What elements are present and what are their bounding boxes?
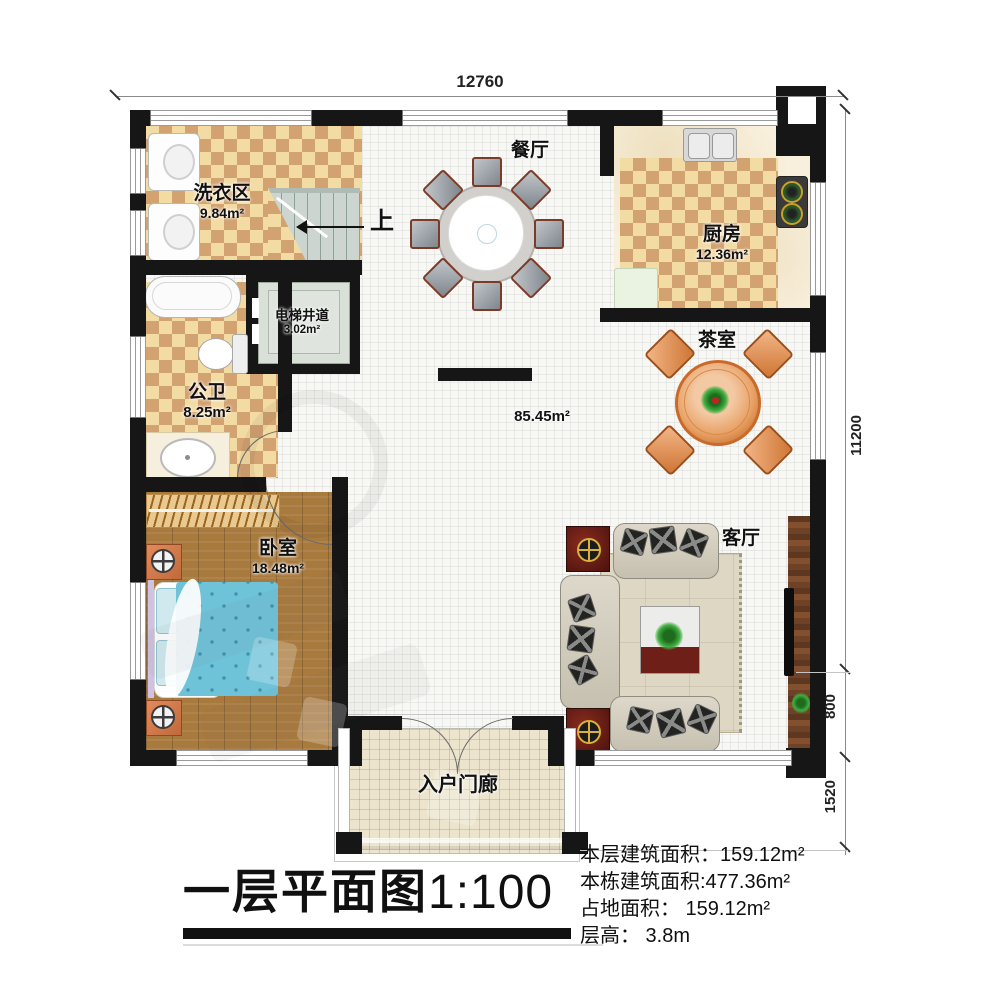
- exterior-wall-top: [566, 110, 662, 126]
- porch-side-wall: [564, 728, 576, 836]
- watermark: [246, 636, 298, 688]
- room-name: 卧室: [252, 538, 304, 560]
- room-label-tea-room: 茶室: [698, 330, 736, 352]
- toilet-tank: [232, 334, 248, 374]
- sink-basin: [688, 133, 710, 159]
- chimney-flue: [788, 96, 816, 124]
- wall: [438, 368, 532, 381]
- dining-chair: [472, 157, 502, 187]
- bathtub-inner: [152, 282, 232, 310]
- toilet-bowl: [198, 338, 234, 370]
- info-floor-area: 本层建筑面积：159.12m²: [580, 838, 805, 867]
- washer-door-icon: [163, 214, 195, 250]
- gas-stove: [776, 176, 808, 228]
- title-block: 一层平面图1:100: [183, 853, 553, 922]
- window: [130, 148, 146, 194]
- corner-block: [786, 748, 826, 778]
- dimension-line-right: [845, 110, 846, 855]
- room-area: 3.02m²: [275, 324, 329, 337]
- bathtub: [145, 276, 241, 318]
- title-scale: 1:100: [428, 866, 553, 919]
- sofa-pillow: [566, 624, 595, 653]
- page-title: 一层平面图: [183, 865, 428, 918]
- room-area: 18.48m²: [252, 560, 304, 576]
- sofa-pillow: [648, 525, 677, 554]
- lamp-icon: [577, 538, 601, 562]
- dining-table-center: [477, 224, 497, 244]
- room-area: 9.84m²: [193, 205, 250, 221]
- basin-drain-icon: [185, 455, 190, 460]
- exterior-wall-top: [310, 110, 402, 126]
- tea-plant-flower: [712, 397, 719, 404]
- window: [130, 336, 146, 418]
- room-label-bedroom: 卧室 18.48m²: [252, 538, 304, 576]
- wall: [130, 260, 362, 275]
- washing-machine: [148, 203, 200, 261]
- room-name: 餐厅: [511, 140, 549, 162]
- wall-connector: [548, 716, 564, 766]
- stove-burner-icon: [781, 181, 803, 203]
- dining-chair: [534, 219, 564, 249]
- info-footprint-area: 占地面积： 159.12m²: [580, 892, 770, 921]
- room-label-living: 客厅: [722, 528, 760, 550]
- watermark-ring: [240, 390, 388, 538]
- floor-plan-canvas: 上: [0, 0, 1000, 990]
- washing-machine: [148, 133, 200, 191]
- room-label-porch: 入户门廊: [418, 774, 498, 797]
- title-underline-light: [183, 944, 603, 946]
- kitchen-sink: [683, 128, 737, 162]
- dimension-top-width: 12760: [456, 72, 503, 92]
- porch-column: [336, 832, 362, 854]
- window: [810, 182, 826, 296]
- lamp-icon: [151, 549, 175, 573]
- room-area: 12.36m²: [696, 246, 748, 262]
- room-label-dining: 餐厅: [511, 140, 549, 162]
- window: [662, 110, 778, 126]
- sofa-pillow: [626, 706, 654, 734]
- wardrobe-rail: [149, 509, 273, 512]
- dimension-right-porch: 1520: [822, 780, 839, 813]
- room-label-bathroom: 公卫 8.25m²: [183, 382, 231, 421]
- stairs-up-arrow-head: [296, 220, 307, 234]
- room-label-hall-area: 85.45m²: [514, 408, 570, 425]
- room-name: 公卫: [183, 382, 231, 404]
- elevator-door-mark: [252, 324, 259, 344]
- porch-step: [350, 846, 562, 850]
- room-name: 厨房: [696, 224, 748, 246]
- end-table: [566, 526, 610, 572]
- nightstand: [146, 544, 182, 580]
- info-floor-height: 层高： 3.8m: [580, 919, 690, 948]
- wash-basin: [160, 438, 216, 478]
- room-name: 入户门廊: [418, 774, 498, 797]
- tv: [784, 588, 794, 676]
- nightstand: [146, 700, 182, 736]
- dimension-right-living: 800: [822, 694, 839, 719]
- porch-step: [350, 838, 562, 843]
- room-name: 客厅: [722, 528, 760, 550]
- dining-chair: [472, 281, 502, 311]
- title-underline: [183, 928, 571, 939]
- washer-door-icon: [163, 144, 195, 180]
- room-name: 电梯井道: [275, 308, 329, 324]
- dining-chair: [410, 219, 440, 249]
- room-label-kitchen: 厨房 12.36m²: [696, 224, 748, 262]
- window: [150, 110, 312, 126]
- wall: [600, 126, 614, 176]
- dimension-tick: [109, 89, 120, 100]
- room-area: 8.25m²: [183, 404, 231, 421]
- kitchen-cabinet: [614, 268, 658, 310]
- dimension-right-height: 11200: [848, 415, 865, 456]
- corner-plant: [792, 692, 810, 714]
- window: [810, 352, 826, 460]
- stove-burner-icon: [781, 203, 803, 225]
- stairs-up-arrow-line: [306, 226, 364, 228]
- window: [130, 210, 146, 256]
- coffee-table-plant: [655, 622, 683, 650]
- window: [402, 110, 568, 126]
- porch-side-wall: [338, 728, 350, 836]
- room-label-elevator: 电梯井道 3.02m²: [275, 308, 329, 337]
- window: [594, 750, 792, 766]
- stairs-up-label: 上: [370, 208, 394, 236]
- dimension-extension-line: [796, 672, 850, 673]
- dimension-line-top: [115, 96, 845, 97]
- sink-basin: [712, 133, 734, 159]
- room-area: 85.45m²: [514, 408, 570, 425]
- lamp-icon: [577, 720, 601, 744]
- watermark: [296, 696, 348, 748]
- room-name: 洗衣区: [193, 183, 250, 205]
- info-building-area: 本栋建筑面积:477.36m²: [580, 865, 790, 894]
- room-name: 茶室: [698, 330, 736, 352]
- elevator-door-mark: [252, 298, 259, 318]
- coffee-table-base: [641, 647, 699, 673]
- room-label-laundry: 洗衣区 9.84m²: [193, 183, 250, 221]
- wall: [600, 308, 810, 322]
- dimension-tick: [837, 89, 848, 100]
- lamp-icon: [151, 705, 175, 729]
